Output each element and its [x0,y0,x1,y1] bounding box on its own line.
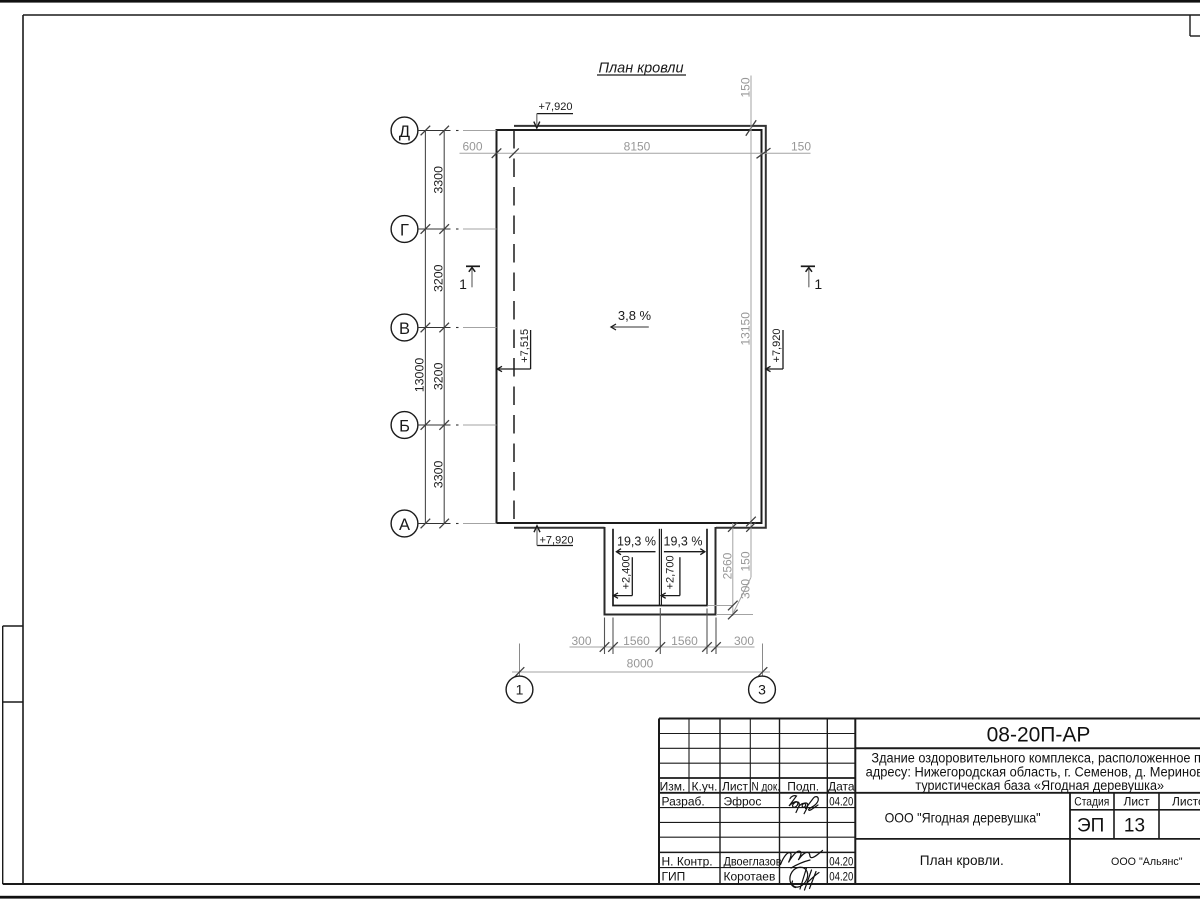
svg-text:300: 300 [739,579,753,599]
svg-text:04.20: 04.20 [829,795,853,809]
svg-text:Коротаев: Коротаев [724,869,776,883]
svg-text:13000: 13000 [413,358,427,393]
svg-text:Листов: Листов [1172,795,1200,809]
svg-text:Здание оздоровительного компле: Здание оздоровительного комплекса, распо… [871,751,1200,766]
svg-text:8150: 8150 [624,140,651,154]
svg-text:Разраб.: Разраб. [662,795,705,809]
svg-text:3,8 %: 3,8 % [618,308,652,323]
svg-text:Г: Г [400,221,409,239]
svg-text:N док.: N док. [752,779,781,793]
svg-text:ГИП: ГИП [662,869,686,883]
svg-text:3300: 3300 [432,166,446,194]
svg-text:Н. Контр.: Н. Контр. [662,855,713,869]
svg-text:300: 300 [734,634,754,648]
svg-text:1560: 1560 [623,634,650,648]
svg-text:Двоеглазов: Двоеглазов [724,855,782,869]
svg-text:+2,400: +2,400 [620,555,632,589]
svg-text:Лист: Лист [722,779,749,793]
svg-text:+7,920: +7,920 [539,101,573,113]
svg-text:Изм.: Изм. [660,779,686,793]
svg-text:04.20: 04.20 [829,855,853,869]
svg-text:ООО "Ягодная деревушка": ООО "Ягодная деревушка" [885,809,1041,825]
svg-text:19,3 %: 19,3 % [664,534,703,548]
svg-text:А: А [399,516,410,534]
svg-text:150: 150 [739,77,753,97]
svg-text:ЭП: ЭП [1077,816,1104,837]
svg-text:150: 150 [791,140,811,154]
svg-text:150: 150 [739,551,753,571]
svg-text:3: 3 [758,682,766,698]
svg-text:1: 1 [459,276,467,292]
svg-text:Б: Б [399,417,410,435]
svg-text:600: 600 [462,140,482,154]
svg-text:3200: 3200 [432,362,446,390]
svg-text:Д: Д [399,123,410,141]
svg-text:План кровли.: План кровли. [920,852,1004,868]
svg-text:13: 13 [1124,816,1145,837]
svg-text:Лист: Лист [1123,795,1150,809]
svg-text:2560: 2560 [720,552,734,579]
svg-text:ООО "Альянс": ООО "Альянс" [1111,856,1183,868]
svg-text:3200: 3200 [432,264,446,292]
svg-text:К.уч.: К.уч. [692,779,718,793]
svg-text:1560: 1560 [671,634,698,648]
svg-text:13150: 13150 [739,312,753,346]
svg-text:туристическая база «Ягодная де: туристическая база «Ягодная деревушка» [915,778,1164,793]
svg-text:+7,920: +7,920 [540,535,574,547]
svg-text:3300: 3300 [432,461,446,489]
svg-text:В: В [399,320,410,338]
svg-text:Стадия: Стадия [1074,795,1109,809]
svg-text:8000: 8000 [627,657,654,671]
svg-text:+2,700: +2,700 [664,555,676,589]
svg-text:+7,920: +7,920 [771,329,783,363]
svg-text:Эфрос: Эфрос [724,795,762,809]
svg-text:19,3 %: 19,3 % [617,534,656,548]
svg-text:04.20: 04.20 [829,869,853,883]
svg-text:1: 1 [814,276,822,292]
svg-text:Подп.: Подп. [787,779,819,793]
svg-text:300: 300 [571,634,591,648]
svg-text:Дата: Дата [828,779,855,793]
svg-text:1: 1 [516,682,524,698]
svg-text:08-20П-АР: 08-20П-АР [987,724,1091,747]
svg-text:План кровли: План кровли [598,61,683,77]
svg-text:+7,515: +7,515 [519,329,531,363]
